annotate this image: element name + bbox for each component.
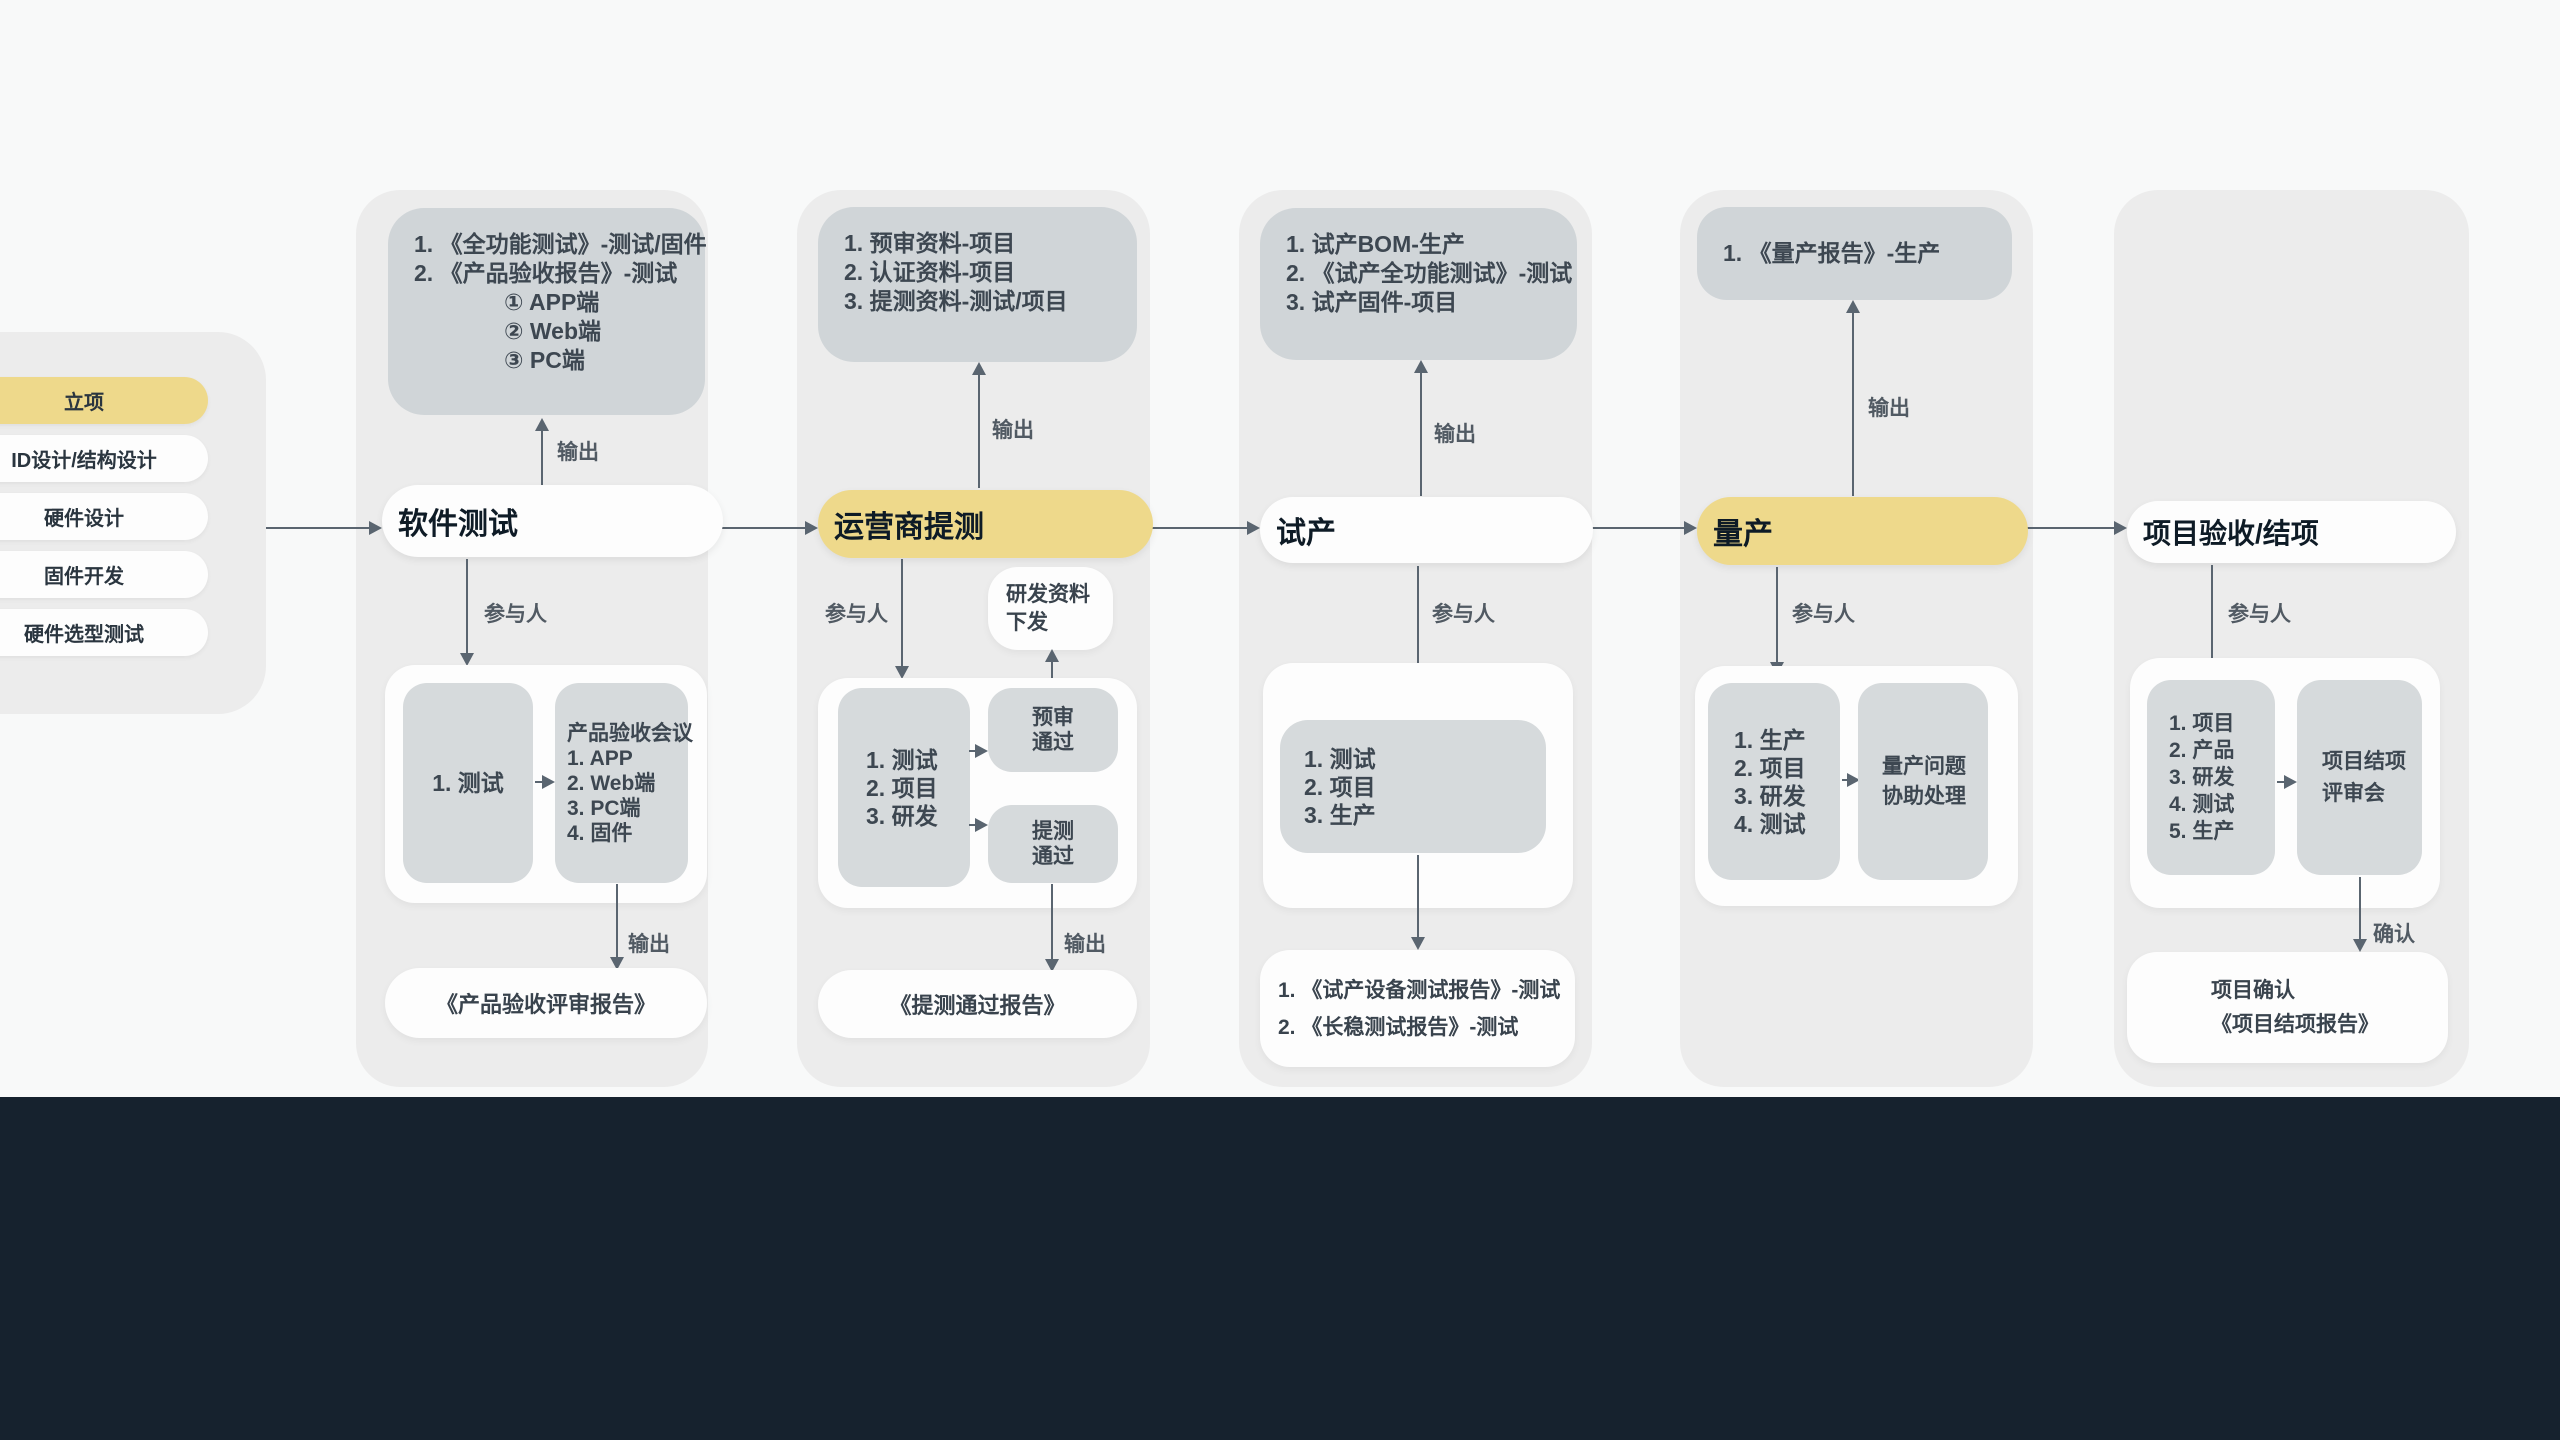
doc-line: 3. 提测资料-测试/项目 bbox=[844, 287, 1121, 316]
software-test-tester-box: 1. 测试 bbox=[403, 683, 533, 883]
arrow-up-output bbox=[978, 364, 980, 488]
sidebar-item-project-kickoff: 立项 bbox=[0, 377, 208, 424]
edge-label-participants: 参与人 bbox=[484, 598, 547, 628]
sidebar-item-label: ID设计/结构设计 bbox=[11, 444, 157, 473]
stage-label: 试产 bbox=[1276, 508, 1336, 552]
flow-arrow-mass-to-closure bbox=[2013, 527, 2125, 529]
sidebar-item-label: 立项 bbox=[64, 386, 104, 415]
arrow-down-participants bbox=[1776, 567, 1778, 673]
arrow-up-output bbox=[1852, 302, 1854, 496]
participant-line: 3. 研发 bbox=[866, 802, 970, 830]
camos-process-diagram: 立项 ID设计/结构设计 硬件设计 固件开发 硬件选型测试 1. 《全功能测试》… bbox=[0, 0, 2560, 1440]
sidebar-item-hardware-design: 硬件设计 bbox=[0, 493, 208, 540]
arrow-up-output bbox=[541, 420, 543, 486]
edge-label-output: 输出 bbox=[628, 928, 670, 958]
doc-line: 3. 试产固件-项目 bbox=[1286, 288, 1561, 317]
arrow-up-output bbox=[1420, 362, 1422, 496]
participant-line: 3. 研发 bbox=[1734, 782, 1840, 810]
stage-label: 量产 bbox=[1713, 509, 1773, 553]
arrow-down-participants bbox=[466, 559, 468, 664]
arrow-down-to-trial-reports bbox=[1417, 855, 1419, 948]
stage-label: 软件测试 bbox=[398, 499, 518, 543]
doc-line: 2. 《试产全功能测试》-测试 bbox=[1286, 259, 1561, 288]
assist-line: 量产问题 bbox=[1882, 752, 1988, 782]
doc-line: 1. 预审资料-项目 bbox=[844, 229, 1121, 258]
stage-pill-carrier-submit: 运营商提测 bbox=[818, 490, 1153, 558]
arrow-down-confirm bbox=[2359, 877, 2361, 950]
doc-line: ③ PC端 bbox=[414, 346, 689, 375]
stage-pill-trial-production: 试产 bbox=[1260, 497, 1593, 563]
participant-line: 2. 项目 bbox=[1304, 773, 1546, 801]
participant-line: 3. 研发 bbox=[2169, 764, 2275, 791]
submit-pass-report-pill: 《提测通过报告》 bbox=[818, 970, 1137, 1038]
doc-line: 1. 试产BOM-生产 bbox=[1286, 230, 1561, 259]
acceptance-review-report-pill: 《产品验收评审报告》 bbox=[385, 968, 707, 1038]
meeting-line: 产品验收会议 bbox=[567, 721, 688, 746]
participant-line: 1. 测试 bbox=[1304, 745, 1546, 773]
trial-reports-box: 1. 《试产设备测试报告》-测试 2. 《长稳测试报告》-测试 bbox=[1260, 950, 1575, 1067]
flow-arrow-sidebar-to-software-test bbox=[266, 527, 380, 529]
carrier-participants-box: 1. 测试 2. 项目 3. 研发 bbox=[838, 688, 970, 887]
acceptance-meeting-box: 产品验收会议 1. APP 2. Web端 3. PC端 4. 固件 bbox=[555, 683, 688, 883]
participant-line: 5. 生产 bbox=[2169, 818, 2275, 845]
report-line: 1. 《试产设备测试报告》-测试 bbox=[1278, 972, 1575, 1009]
meeting-line: 4. 固件 bbox=[567, 821, 688, 846]
sidebar-item-hw-selection-test: 硬件选型测试 bbox=[0, 609, 208, 656]
prereview-pass-box: 预审 通过 bbox=[988, 688, 1118, 772]
arrow-down-output bbox=[616, 884, 618, 968]
participant-line: 3. 生产 bbox=[1304, 801, 1546, 829]
participant-line: 1. 项目 bbox=[2169, 710, 2275, 737]
meeting-line: 2. Web端 bbox=[567, 771, 688, 796]
arrow-to-review-meeting bbox=[2277, 781, 2295, 783]
report-line: 2. 《长稳测试报告》-测试 bbox=[1278, 1009, 1575, 1046]
confirm-line: 项目确认 bbox=[2211, 974, 2448, 1008]
stage-label: 项目验收/结项 bbox=[2143, 512, 2319, 552]
edge-label-output: 输出 bbox=[557, 436, 599, 466]
doc-line: 1. 《全功能测试》-测试/固件 bbox=[414, 230, 689, 259]
arrow-test-to-meeting bbox=[535, 781, 553, 783]
pass-line: 提测 bbox=[1032, 819, 1074, 844]
trial-participants-box: 1. 测试 2. 项目 3. 生产 bbox=[1280, 720, 1546, 853]
participant-line: 1. 测试 bbox=[866, 746, 970, 774]
edge-label-output: 输出 bbox=[1064, 928, 1106, 958]
sidebar-item-label: 硬件设计 bbox=[44, 502, 124, 531]
sidebar-item-firmware-dev: 固件开发 bbox=[0, 551, 208, 598]
sidebar-item-id-structure-design: ID设计/结构设计 bbox=[0, 435, 208, 482]
confirm-line: 《项目结项报告》 bbox=[2211, 1008, 2448, 1042]
footer-band: 易瞳CamOS服务流程 （4）软件部分：软件定制开发服务、嵌入式软件开发、视频A… bbox=[0, 1097, 2560, 1440]
report-label: 《产品验收评审报告》 bbox=[436, 987, 656, 1019]
rd-line: 下发 bbox=[1006, 609, 1113, 637]
stage-label: 运营商提测 bbox=[834, 502, 984, 546]
doc-line: 1. 《量产报告》-生产 bbox=[1723, 239, 1996, 268]
participant-line: 2. 项目 bbox=[1734, 754, 1840, 782]
participant-line: 4. 测试 bbox=[1734, 810, 1840, 838]
participant-line: 2. 项目 bbox=[866, 774, 970, 802]
stage-pill-software-test: 软件测试 bbox=[382, 485, 723, 557]
rd-line: 研发资料 bbox=[1006, 581, 1113, 609]
meeting-line: 1. APP bbox=[567, 746, 688, 771]
report-label: 《提测通过报告》 bbox=[889, 988, 1065, 1020]
stage-pill-project-closure: 项目验收/结项 bbox=[2127, 501, 2456, 563]
edge-label-participants: 参与人 bbox=[1792, 598, 1855, 628]
mass-issue-assist-box: 量产问题 协助处理 bbox=[1858, 683, 1988, 880]
assist-line: 协助处理 bbox=[1882, 782, 1988, 812]
pass-line: 通过 bbox=[1032, 730, 1074, 755]
arrow-to-assist-box bbox=[1842, 779, 1858, 781]
carrier-output-docs-box: 1. 预审资料-项目 2. 认证资料-项目 3. 提测资料-测试/项目 bbox=[818, 207, 1137, 362]
flow-arrow-carrier-to-trial bbox=[1138, 527, 1258, 529]
column-panel-mass-production bbox=[1680, 190, 2033, 1087]
mass-participants-box: 1. 生产 2. 项目 3. 研发 4. 测试 bbox=[1708, 683, 1840, 880]
doc-line: 2. 《产品验收报告》-测试 bbox=[414, 259, 689, 288]
edge-label-output: 输出 bbox=[992, 414, 1034, 444]
closure-review-meeting-box: 项目结项 评审会 bbox=[2297, 680, 2422, 875]
arrow-down-output bbox=[1051, 884, 1053, 970]
flow-arrow-trial-to-mass bbox=[1578, 527, 1695, 529]
edge-label-output: 输出 bbox=[1434, 418, 1476, 448]
edge-label-confirm: 确认 bbox=[2373, 918, 2415, 948]
arrow-down-participants bbox=[901, 559, 903, 677]
project-confirm-report-box: 项目确认 《项目结项报告》 bbox=[2127, 952, 2448, 1063]
flow-arrow-software-test-to-carrier bbox=[708, 527, 816, 529]
participant-line: 1. 测试 bbox=[432, 769, 504, 797]
edge-label-output: 输出 bbox=[1868, 392, 1910, 422]
review-line: 项目结项 bbox=[2322, 746, 2422, 778]
meeting-line: 3. PC端 bbox=[567, 796, 688, 821]
edge-label-participants: 参与人 bbox=[1432, 598, 1495, 628]
edge-label-participants: 参与人 bbox=[2228, 598, 2291, 628]
participant-line: 2. 产品 bbox=[2169, 737, 2275, 764]
participant-line: 1. 生产 bbox=[1734, 726, 1840, 754]
review-line: 评审会 bbox=[2322, 778, 2422, 810]
pass-line: 预审 bbox=[1032, 705, 1074, 730]
edge-label-participants: 参与人 bbox=[825, 598, 888, 628]
participant-line: 4. 测试 bbox=[2169, 791, 2275, 818]
arrow-to-prereview-pass bbox=[969, 750, 986, 752]
sidebar-item-label: 固件开发 bbox=[44, 560, 124, 589]
doc-line: ① APP端 bbox=[414, 288, 689, 317]
rd-material-release-box: 研发资料 下发 bbox=[988, 567, 1113, 650]
sidebar-item-label: 硬件选型测试 bbox=[24, 618, 144, 647]
stage-pill-mass-production: 量产 bbox=[1697, 497, 2028, 565]
trial-output-docs-box: 1. 试产BOM-生产 2. 《试产全功能测试》-测试 3. 试产固件-项目 bbox=[1260, 208, 1577, 360]
mass-output-docs-box: 1. 《量产报告》-生产 bbox=[1697, 207, 2012, 300]
software-test-output-docs-box: 1. 《全功能测试》-测试/固件 2. 《产品验收报告》-测试 ① APP端 ②… bbox=[388, 208, 705, 415]
submit-pass-box: 提测 通过 bbox=[988, 805, 1118, 883]
pass-line: 通过 bbox=[1032, 844, 1074, 869]
arrow-to-submit-pass bbox=[969, 824, 986, 826]
closure-participants-box: 1. 项目 2. 产品 3. 研发 4. 测试 5. 生产 bbox=[2147, 680, 2275, 875]
doc-line: ② Web端 bbox=[414, 317, 689, 346]
doc-line: 2. 认证资料-项目 bbox=[844, 258, 1121, 287]
